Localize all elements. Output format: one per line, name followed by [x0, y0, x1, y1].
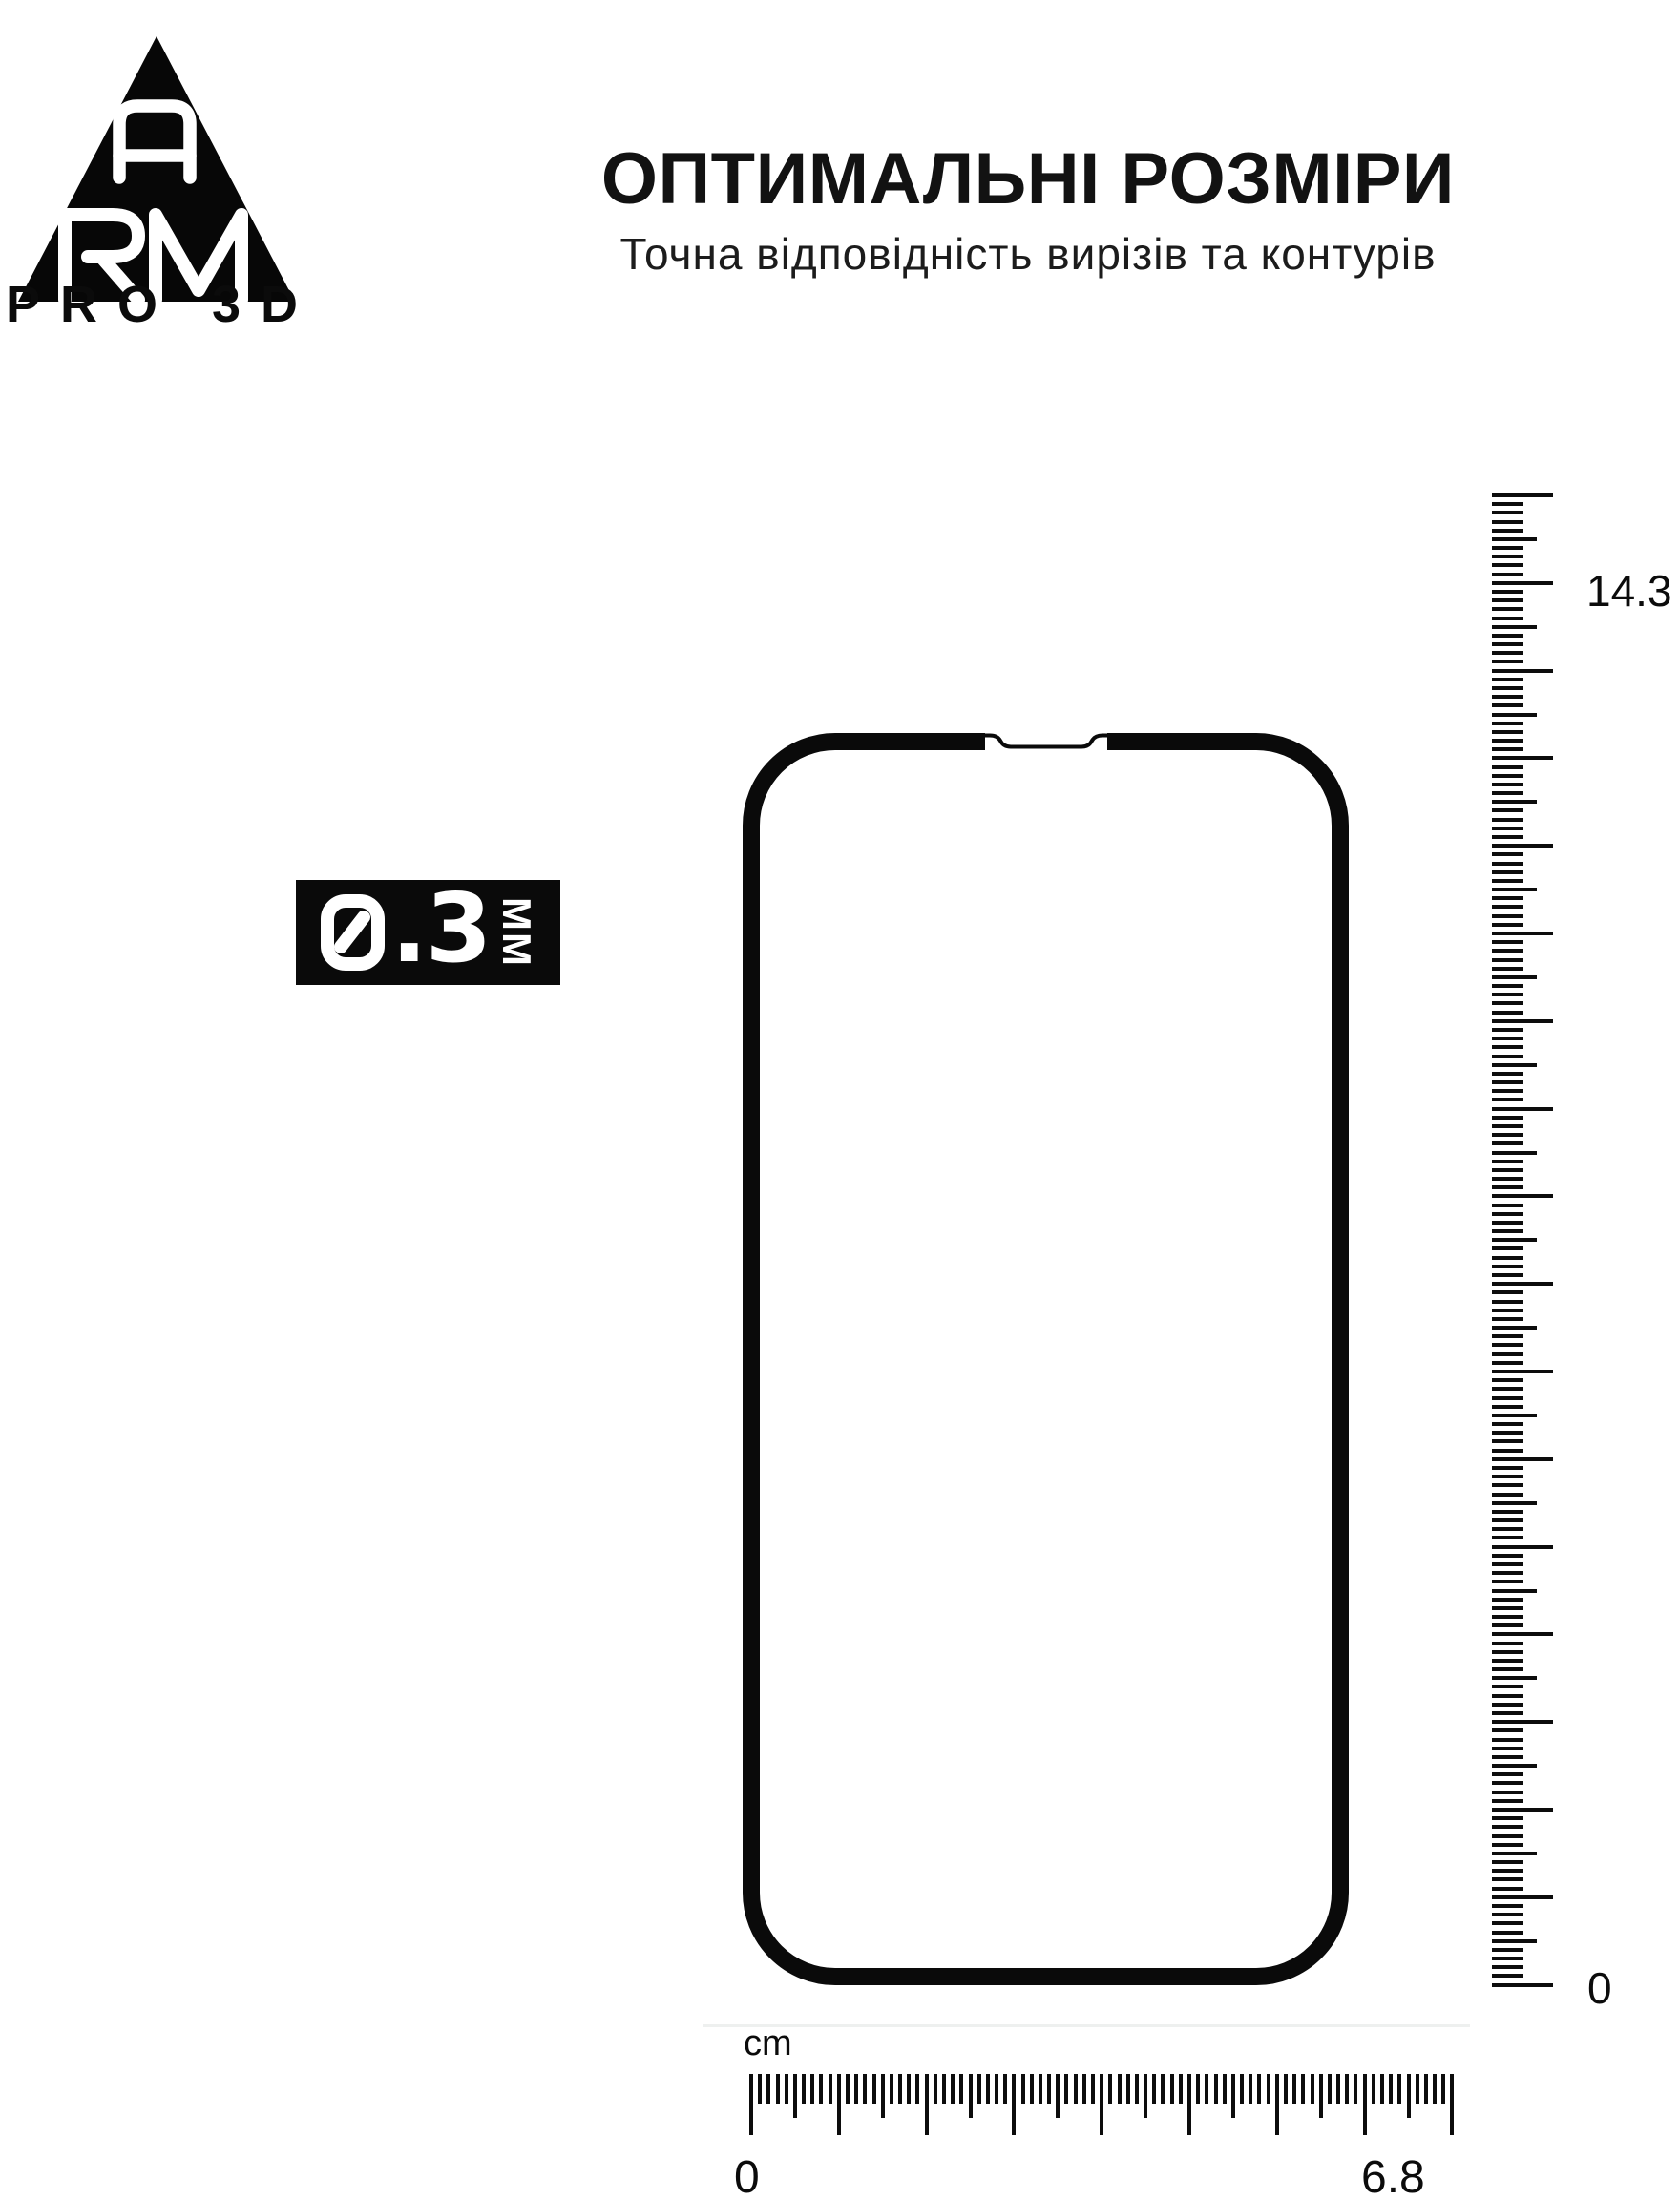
vertical-ruler-tick	[1492, 818, 1523, 822]
vertical-ruler-tick	[1492, 1309, 1523, 1312]
vertical-ruler-tick	[1492, 590, 1523, 594]
vertical-ruler-tick	[1492, 669, 1553, 673]
vertical-ruler-tick	[1492, 493, 1553, 497]
vertical-ruler-tick	[1492, 1194, 1553, 1198]
vertical-ruler-tick	[1492, 703, 1523, 707]
horizontal-ruler-tick	[1118, 2074, 1122, 2104]
horizontal-ruler-tick	[1161, 2074, 1165, 2104]
vertical-ruler-tick	[1492, 555, 1523, 558]
horizontal-ruler	[749, 2074, 1456, 2141]
horizontal-ruler-tick	[969, 2074, 973, 2118]
vertical-ruler-tick	[1492, 502, 1523, 506]
vertical-ruler-tick	[1492, 1028, 1523, 1032]
horizontal-ruler-tick	[1196, 2074, 1200, 2104]
vertical-ruler-tick	[1492, 888, 1537, 891]
vertical-ruler-zero-label: 0	[1587, 1962, 1612, 2014]
horizontal-ruler-tick	[766, 2074, 770, 2104]
horizontal-ruler-tick	[1135, 2074, 1139, 2104]
vertical-ruler-tick	[1492, 1457, 1553, 1461]
horizontal-ruler-tick	[1450, 2074, 1454, 2135]
vertical-ruler-tick	[1492, 1931, 1523, 1935]
vertical-ruler-tick	[1492, 573, 1523, 576]
vertical-ruler-tick	[1492, 905, 1523, 909]
horizontal-ruler-tick	[1319, 2074, 1323, 2118]
vertical-ruler-tick	[1492, 1738, 1523, 1742]
vertical-ruler-tick	[1492, 1965, 1523, 1969]
vertical-ruler-tick	[1492, 1045, 1523, 1049]
horizontal-ruler-tick	[1397, 2074, 1401, 2104]
product-infographic: PRO 3D ОПТИМАЛЬНІ РОЗМІРИ Точна відповід…	[0, 0, 1680, 2199]
vertical-ruler-tick	[1492, 1501, 1537, 1505]
horizontal-ruler-tick	[1187, 2074, 1191, 2135]
vertical-ruler-tick	[1492, 1019, 1553, 1023]
thickness-badge: .3 ММ	[296, 880, 560, 985]
vertical-ruler-tick	[1492, 1895, 1553, 1899]
horizontal-ruler-tick	[1214, 2074, 1218, 2104]
vertical-ruler-tick	[1492, 791, 1523, 795]
vertical-ruler-tick	[1492, 1387, 1523, 1391]
horizontal-ruler-tick	[1223, 2074, 1227, 2104]
vertical-ruler-tick	[1492, 1554, 1523, 1558]
vertical-ruler-tick	[1492, 1606, 1523, 1610]
vertical-ruler-tick	[1492, 563, 1523, 567]
vertical-ruler-tick	[1492, 520, 1523, 524]
vertical-ruler-tick	[1492, 1834, 1523, 1838]
vertical-ruler-tick	[1492, 739, 1523, 743]
vertical-ruler-tick	[1492, 800, 1537, 804]
vertical-ruler-tick	[1492, 1615, 1523, 1619]
vertical-ruler-tick	[1492, 765, 1523, 769]
vertical-ruler-tick	[1492, 1229, 1523, 1233]
vertical-ruler-tick	[1492, 1493, 1523, 1497]
vertical-ruler-tick	[1492, 1238, 1537, 1242]
thickness-unit-wrap: ММ	[495, 887, 537, 978]
horizontal-ruler-tick	[915, 2074, 919, 2104]
horizontal-ruler-tick	[1074, 2074, 1078, 2104]
vertical-ruler-tick	[1492, 1151, 1537, 1155]
vertical-ruler-tick	[1492, 1571, 1523, 1575]
horizontal-ruler-tick	[1249, 2074, 1252, 2104]
vertical-ruler-tick	[1492, 1370, 1553, 1373]
vertical-ruler-tick	[1492, 686, 1523, 690]
vertical-ruler	[1492, 493, 1559, 1988]
horizontal-ruler-tick	[829, 2074, 832, 2104]
vertical-ruler-tick	[1492, 1939, 1537, 1943]
vertical-ruler-tick	[1492, 1256, 1523, 1260]
vertical-ruler-tick	[1492, 1422, 1523, 1426]
vertical-ruler-tick	[1492, 1728, 1523, 1732]
horizontal-ruler-tick	[1056, 2074, 1060, 2118]
vertical-ruler-tick	[1492, 958, 1523, 962]
horizontal-ruler-tick	[1433, 2074, 1437, 2104]
vertical-ruler-tick	[1492, 1518, 1523, 1522]
vertical-ruler-tick	[1492, 1361, 1523, 1365]
horizontal-ruler-tick	[1021, 2074, 1025, 2104]
vertical-ruler-tick	[1492, 1527, 1523, 1531]
vertical-ruler-tick	[1492, 1598, 1523, 1602]
horizontal-ruler-max-label: 6.8	[1361, 2151, 1425, 2199]
horizontal-ruler-tick	[1179, 2074, 1183, 2104]
horizontal-ruler-tick	[881, 2074, 885, 2118]
vertical-ruler-tick	[1492, 1334, 1523, 1338]
vertical-ruler-tick	[1492, 1475, 1523, 1478]
vertical-ruler-tick	[1492, 967, 1523, 971]
horizontal-ruler-unit-label: cm	[744, 2023, 792, 2064]
vertical-ruler-tick	[1492, 1685, 1523, 1688]
vertical-ruler-tick	[1492, 1221, 1523, 1225]
horizontal-ruler-tick	[925, 2074, 929, 2135]
horizontal-ruler-tick	[793, 2074, 797, 2118]
vertical-ruler-tick	[1492, 984, 1523, 988]
vertical-ruler-tick	[1492, 546, 1523, 550]
vertical-ruler-tick	[1492, 1431, 1523, 1435]
header: ОПТИМАЛЬНІ РОЗМІРИ Точна відповідність в…	[474, 141, 1582, 280]
horizontal-ruler-tick	[872, 2074, 876, 2104]
horizontal-ruler-tick	[1064, 2074, 1068, 2104]
vertical-ruler-tick	[1492, 1378, 1523, 1382]
vertical-ruler-tick	[1492, 1204, 1523, 1207]
horizontal-ruler-tick	[1240, 2074, 1244, 2104]
vertical-ruler-tick	[1492, 1273, 1523, 1277]
horizontal-ruler-tick	[1231, 2074, 1235, 2118]
vertical-ruler-tick	[1492, 678, 1523, 681]
horizontal-ruler-tick	[1292, 2074, 1296, 2104]
horizontal-ruler-tick	[898, 2074, 902, 2104]
horizontal-ruler-tick	[1126, 2074, 1130, 2104]
vertical-ruler-tick	[1492, 1799, 1523, 1803]
vertical-ruler-tick	[1492, 1580, 1523, 1583]
vertical-ruler-tick	[1492, 852, 1523, 856]
vertical-ruler-tick	[1492, 1808, 1553, 1812]
horizontal-ruler-tick	[1047, 2074, 1051, 2104]
vertical-ruler-tick	[1492, 1755, 1523, 1759]
vertical-ruler-tick	[1492, 1168, 1523, 1172]
vertical-ruler-tick	[1492, 1703, 1523, 1707]
horizontal-ruler-tick	[819, 2074, 823, 2104]
vertical-ruler-tick	[1492, 1124, 1523, 1128]
vertical-ruler-tick	[1492, 896, 1523, 900]
vertical-ruler-tick	[1492, 827, 1523, 830]
horizontal-ruler-tick	[1205, 2074, 1208, 2104]
vertical-ruler-tick	[1492, 1642, 1523, 1645]
vertical-ruler-tick	[1492, 1483, 1523, 1487]
horizontal-ruler-tick	[1144, 2074, 1147, 2118]
horizontal-ruler-tick	[1407, 2074, 1411, 2118]
vertical-ruler-tick	[1492, 617, 1523, 620]
screen-protector-outline	[743, 733, 1349, 1985]
horizontal-ruler-zero-label: 0	[734, 2151, 760, 2199]
vertical-ruler-tick	[1492, 1133, 1523, 1137]
vertical-ruler-tick	[1492, 1001, 1523, 1005]
vertical-ruler-tick	[1492, 660, 1523, 663]
horizontal-ruler-tick	[942, 2074, 946, 2104]
vertical-ruler-tick	[1492, 879, 1523, 883]
vertical-ruler-tick	[1492, 914, 1523, 918]
horizontal-ruler-tick	[1030, 2074, 1034, 2104]
page-title: ОПТИМАЛЬНІ РОЗМІРИ	[474, 141, 1582, 217]
vertical-ruler-tick	[1492, 1711, 1523, 1715]
vertical-ruler-tick	[1492, 1282, 1553, 1286]
vertical-ruler-tick	[1492, 1589, 1537, 1593]
vertical-ruler-tick	[1492, 1843, 1523, 1847]
vertical-ruler-tick	[1492, 1300, 1523, 1304]
vertical-ruler-tick	[1492, 783, 1523, 786]
vertical-ruler-tick	[1492, 949, 1523, 953]
vertical-ruler-tick	[1492, 835, 1523, 839]
vertical-ruler-tick	[1492, 642, 1523, 646]
vertical-ruler-tick	[1492, 1694, 1523, 1698]
horizontal-ruler-tick	[837, 2074, 841, 2135]
vertical-ruler-tick	[1492, 1913, 1523, 1916]
horizontal-ruler-tick	[1372, 2074, 1375, 2104]
horizontal-ruler-tick	[1311, 2074, 1314, 2104]
vertical-ruler-tick	[1492, 722, 1523, 725]
vertical-ruler-tick	[1492, 1343, 1523, 1347]
vertical-ruler-tick	[1492, 1632, 1553, 1636]
vertical-ruler-tick	[1492, 1405, 1523, 1409]
vertical-ruler-tick	[1492, 1212, 1523, 1216]
vertical-ruler-tick	[1492, 1536, 1523, 1539]
horizontal-ruler-tick	[1039, 2074, 1042, 2104]
horizontal-ruler-tick	[1328, 2074, 1332, 2104]
horizontal-ruler-tick	[749, 2074, 753, 2135]
vertical-ruler-tick	[1492, 1659, 1523, 1663]
vertical-ruler-tick	[1492, 730, 1523, 734]
vertical-ruler-tick	[1492, 993, 1523, 996]
page-subtitle: Точна відповідність вирізів та контурів	[474, 228, 1582, 280]
vertical-ruler-tick	[1492, 1326, 1537, 1330]
horizontal-ruler-tick	[1441, 2074, 1445, 2104]
horizontal-ruler-tick	[810, 2074, 814, 2104]
vertical-ruler-tick	[1492, 1860, 1523, 1864]
vertical-ruler-tick	[1492, 1904, 1523, 1908]
vertical-ruler-tick	[1492, 1869, 1523, 1873]
vertical-ruler-tick	[1492, 1816, 1523, 1820]
horizontal-ruler-tick	[1275, 2074, 1279, 2135]
slashed-zero-icon	[319, 891, 386, 974]
vertical-ruler-tick	[1492, 1160, 1523, 1163]
vertical-ruler-tick	[1492, 774, 1523, 778]
vertical-ruler-tick	[1492, 1510, 1523, 1514]
horizontal-ruler-tick	[1108, 2074, 1112, 2104]
vertical-ruler-tick	[1492, 1177, 1523, 1181]
horizontal-ruler-tick	[1345, 2074, 1349, 2104]
horizontal-ruler-tick	[1152, 2074, 1156, 2104]
horizontal-ruler-tick	[1257, 2074, 1261, 2104]
vertical-ruler-tick	[1492, 529, 1523, 533]
vertical-ruler-tick	[1492, 1072, 1523, 1076]
vertical-ruler-tick	[1492, 1317, 1523, 1321]
vertical-ruler-tick	[1492, 844, 1553, 848]
vertical-ruler-tick	[1492, 1764, 1537, 1768]
vertical-ruler-tick	[1492, 870, 1523, 874]
vertical-ruler-tick	[1492, 537, 1537, 541]
horizontal-ruler-tick	[863, 2074, 867, 2104]
vertical-ruler-tick	[1492, 975, 1537, 979]
vertical-ruler-max-label: 14.3	[1586, 565, 1672, 617]
vertical-ruler-tick	[1492, 1983, 1553, 1987]
logo-caption: PRO 3D	[6, 275, 309, 334]
horizontal-ruler-tick	[1424, 2074, 1428, 2104]
vertical-ruler-tick	[1492, 808, 1523, 812]
horizontal-ruler-tick	[758, 2074, 762, 2104]
vertical-ruler-tick	[1492, 1089, 1523, 1093]
vertical-ruler-tick	[1492, 1772, 1523, 1776]
faint-divider	[703, 2024, 1470, 2027]
vertical-ruler-tick	[1492, 1055, 1523, 1058]
vertical-ruler-tick	[1492, 1466, 1523, 1470]
vertical-ruler-tick	[1492, 1080, 1523, 1084]
vertical-ruler-tick	[1492, 1185, 1523, 1189]
horizontal-ruler-tick	[986, 2074, 990, 2104]
glass-border	[751, 742, 1340, 1977]
horizontal-ruler-tick	[1301, 2074, 1305, 2104]
vertical-ruler-tick	[1492, 634, 1523, 638]
vertical-ruler-tick	[1492, 1265, 1523, 1268]
horizontal-ruler-tick	[1267, 2074, 1270, 2104]
vertical-ruler-tick	[1492, 1290, 1523, 1294]
vertical-ruler-tick	[1492, 581, 1553, 585]
vertical-ruler-tick	[1492, 1352, 1523, 1356]
thickness-unit: ММ	[496, 897, 536, 968]
vertical-ruler-tick	[1492, 1116, 1523, 1120]
horizontal-ruler-tick	[1336, 2074, 1340, 2104]
vertical-ruler-tick	[1492, 1650, 1523, 1654]
vertical-ruler-tick	[1492, 1852, 1537, 1855]
vertical-ruler-tick	[1492, 1667, 1523, 1671]
vertical-ruler-tick	[1492, 1396, 1523, 1400]
vertical-ruler-tick	[1492, 1877, 1523, 1881]
vertical-ruler-tick	[1492, 1676, 1537, 1680]
vertical-ruler-tick	[1492, 1747, 1523, 1750]
horizontal-ruler-tick	[995, 2074, 998, 2104]
vertical-ruler-tick	[1492, 598, 1523, 602]
vertical-ruler-tick	[1492, 932, 1553, 935]
horizontal-ruler-tick	[802, 2074, 806, 2104]
horizontal-ruler-tick	[1354, 2074, 1357, 2104]
vertical-ruler-tick	[1492, 1921, 1523, 1925]
vertical-ruler-tick	[1492, 607, 1523, 611]
horizontal-ruler-tick	[1082, 2074, 1086, 2104]
vertical-ruler-tick	[1492, 1414, 1537, 1417]
vertical-ruler-tick	[1492, 1623, 1523, 1627]
vertical-ruler-tick	[1492, 1825, 1523, 1829]
horizontal-ruler-tick	[1380, 2074, 1384, 2104]
vertical-ruler-tick	[1492, 940, 1523, 944]
vertical-ruler-tick	[1492, 1449, 1523, 1453]
vertical-ruler-tick	[1492, 1791, 1523, 1794]
horizontal-ruler-tick	[1091, 2074, 1095, 2104]
vertical-ruler-tick	[1492, 511, 1523, 514]
vertical-ruler-tick	[1492, 1098, 1523, 1101]
horizontal-ruler-tick	[977, 2074, 981, 2104]
vertical-ruler-tick	[1492, 625, 1537, 629]
horizontal-ruler-tick	[951, 2074, 955, 2104]
vertical-ruler-tick	[1492, 713, 1537, 717]
vertical-ruler-tick	[1492, 695, 1523, 699]
horizontal-ruler-tick	[934, 2074, 937, 2104]
vertical-ruler-tick	[1492, 1141, 1523, 1145]
thickness-value-fraction: .3	[391, 881, 491, 976]
vertical-ruler-tick	[1492, 1974, 1523, 1978]
horizontal-ruler-tick	[1363, 2074, 1367, 2135]
horizontal-ruler-tick	[1170, 2074, 1174, 2104]
horizontal-ruler-tick	[959, 2074, 963, 2104]
vertical-ruler-tick	[1492, 1063, 1537, 1067]
vertical-ruler-tick	[1492, 756, 1553, 760]
vertical-ruler-tick	[1492, 1107, 1553, 1111]
vertical-ruler-tick	[1492, 1957, 1523, 1960]
horizontal-ruler-tick	[1284, 2074, 1288, 2104]
horizontal-ruler-tick	[854, 2074, 858, 2104]
vertical-ruler-tick	[1492, 1439, 1523, 1443]
vertical-ruler-tick	[1492, 747, 1523, 751]
horizontal-ruler-tick	[1100, 2074, 1103, 2135]
vertical-ruler-tick	[1492, 1887, 1523, 1891]
horizontal-ruler-tick	[1389, 2074, 1393, 2104]
vertical-ruler-tick	[1492, 1037, 1523, 1040]
horizontal-ruler-tick	[1003, 2074, 1007, 2104]
vertical-ruler-tick	[1492, 1246, 1523, 1250]
vertical-ruler-tick	[1492, 1948, 1523, 1952]
horizontal-ruler-tick	[1416, 2074, 1419, 2104]
vertical-ruler-tick	[1492, 651, 1523, 655]
vertical-ruler-tick	[1492, 1781, 1523, 1785]
horizontal-ruler-tick	[785, 2074, 788, 2104]
horizontal-ruler-tick	[890, 2074, 893, 2104]
vertical-ruler-tick	[1492, 1011, 1523, 1015]
vertical-ruler-tick	[1492, 1545, 1553, 1549]
horizontal-ruler-tick	[907, 2074, 911, 2104]
horizontal-ruler-tick	[1012, 2074, 1016, 2135]
vertical-ruler-tick	[1492, 1720, 1553, 1724]
vertical-ruler-tick	[1492, 1562, 1523, 1566]
vertical-ruler-tick	[1492, 923, 1523, 927]
horizontal-ruler-tick	[846, 2074, 850, 2104]
horizontal-ruler-tick	[776, 2074, 780, 2104]
vertical-ruler-tick	[1492, 862, 1523, 866]
